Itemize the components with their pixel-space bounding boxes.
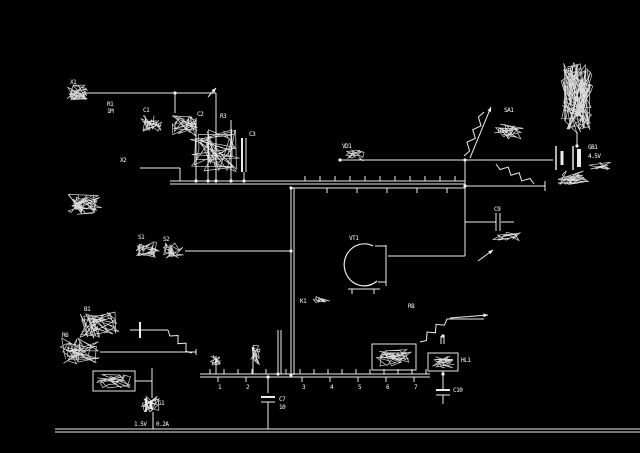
component-label: SA1 [504, 107, 514, 114]
component-label: C10 [453, 387, 463, 394]
junction-dot [289, 186, 292, 189]
component-scribble [190, 130, 239, 172]
component-label: 6 [386, 384, 390, 391]
component-label: 5 [358, 384, 362, 391]
junction-dot [289, 373, 292, 376]
component-scribble [68, 194, 102, 214]
arrow-head [483, 313, 488, 317]
junction-dot [266, 375, 269, 378]
junction-dot [575, 144, 578, 147]
arrow [450, 315, 488, 318]
component-label: R6 [62, 332, 69, 339]
component-label: C1 [143, 107, 150, 114]
component-label: 3 [302, 384, 306, 391]
component-label: R1 [107, 101, 114, 108]
junction-dot [276, 372, 279, 375]
component-scribble [172, 116, 198, 136]
component-scribble [97, 375, 130, 388]
arrow-head [487, 107, 491, 112]
component-label: 1M [107, 108, 114, 115]
resistor-zigzag [420, 319, 447, 342]
component-label: 7 [414, 384, 418, 391]
component-label: S2 [163, 236, 170, 243]
component-scribble [589, 162, 611, 169]
component-label: 10 [279, 404, 286, 411]
component-label: C2 [197, 111, 204, 118]
component-label: C7 [279, 396, 286, 403]
component-label: G1 [158, 400, 165, 407]
junction-dot [194, 179, 197, 182]
component-label: GB1 [588, 144, 598, 151]
junction-dot [173, 91, 176, 94]
component-scribble [561, 62, 593, 132]
component-label: C3 [249, 131, 256, 138]
component-scribble [493, 232, 520, 240]
component-label: VT1 [349, 235, 359, 242]
junction-dot [229, 179, 232, 182]
resistor-zigzag [496, 164, 534, 184]
junction-dot [242, 179, 245, 182]
junction-dot [214, 179, 217, 182]
component-label: 2 [246, 384, 250, 391]
junction-dot [441, 372, 444, 375]
component-scribble [251, 345, 260, 365]
component-label: S1 [138, 234, 145, 241]
component-label: 4.5V [588, 153, 601, 160]
component-arc [344, 244, 377, 286]
component-label: R10 [498, 128, 508, 135]
component-scribble [377, 350, 412, 366]
component-label: X2 [120, 157, 127, 164]
schematic-canvas: X1R11MC1C2R3C3X2S1S2K1VT1VD1C9SA1R10GB14… [0, 0, 640, 453]
component-label: R3 [220, 113, 227, 120]
component-scribble [136, 242, 159, 257]
junction-dot [289, 249, 292, 252]
component-scribble [313, 297, 329, 303]
junction-dot [206, 179, 209, 182]
component-label: 1.5V [134, 421, 147, 428]
component-label: B1 [84, 306, 91, 313]
component-scribble [141, 115, 161, 131]
component-scribble [67, 85, 88, 100]
component-label: 4 [330, 384, 334, 391]
component-label: R8 [408, 303, 415, 310]
component-label: C9 [494, 206, 501, 213]
component-scribble [346, 150, 364, 161]
component-label: HL1 [461, 357, 471, 364]
component-scribble [80, 312, 119, 338]
resistor-zigzag [168, 330, 192, 353]
component-label: VD1 [342, 143, 352, 150]
component-scribble [163, 243, 183, 258]
component-scribble [432, 356, 454, 368]
schematic-screen: X1R11MC1C2R3C3X2S1S2K1VT1VD1C9SA1R10GB14… [0, 0, 640, 453]
junction-dot [463, 184, 466, 187]
junction-dot [463, 158, 466, 161]
component-label: 0.2A [156, 421, 169, 428]
component-label: 1 [218, 384, 222, 391]
junction-dot [338, 158, 341, 161]
component-label: K1 [300, 298, 307, 305]
component-label: X1 [70, 79, 77, 86]
component-scribble [60, 338, 99, 364]
junction-dot [441, 334, 444, 337]
